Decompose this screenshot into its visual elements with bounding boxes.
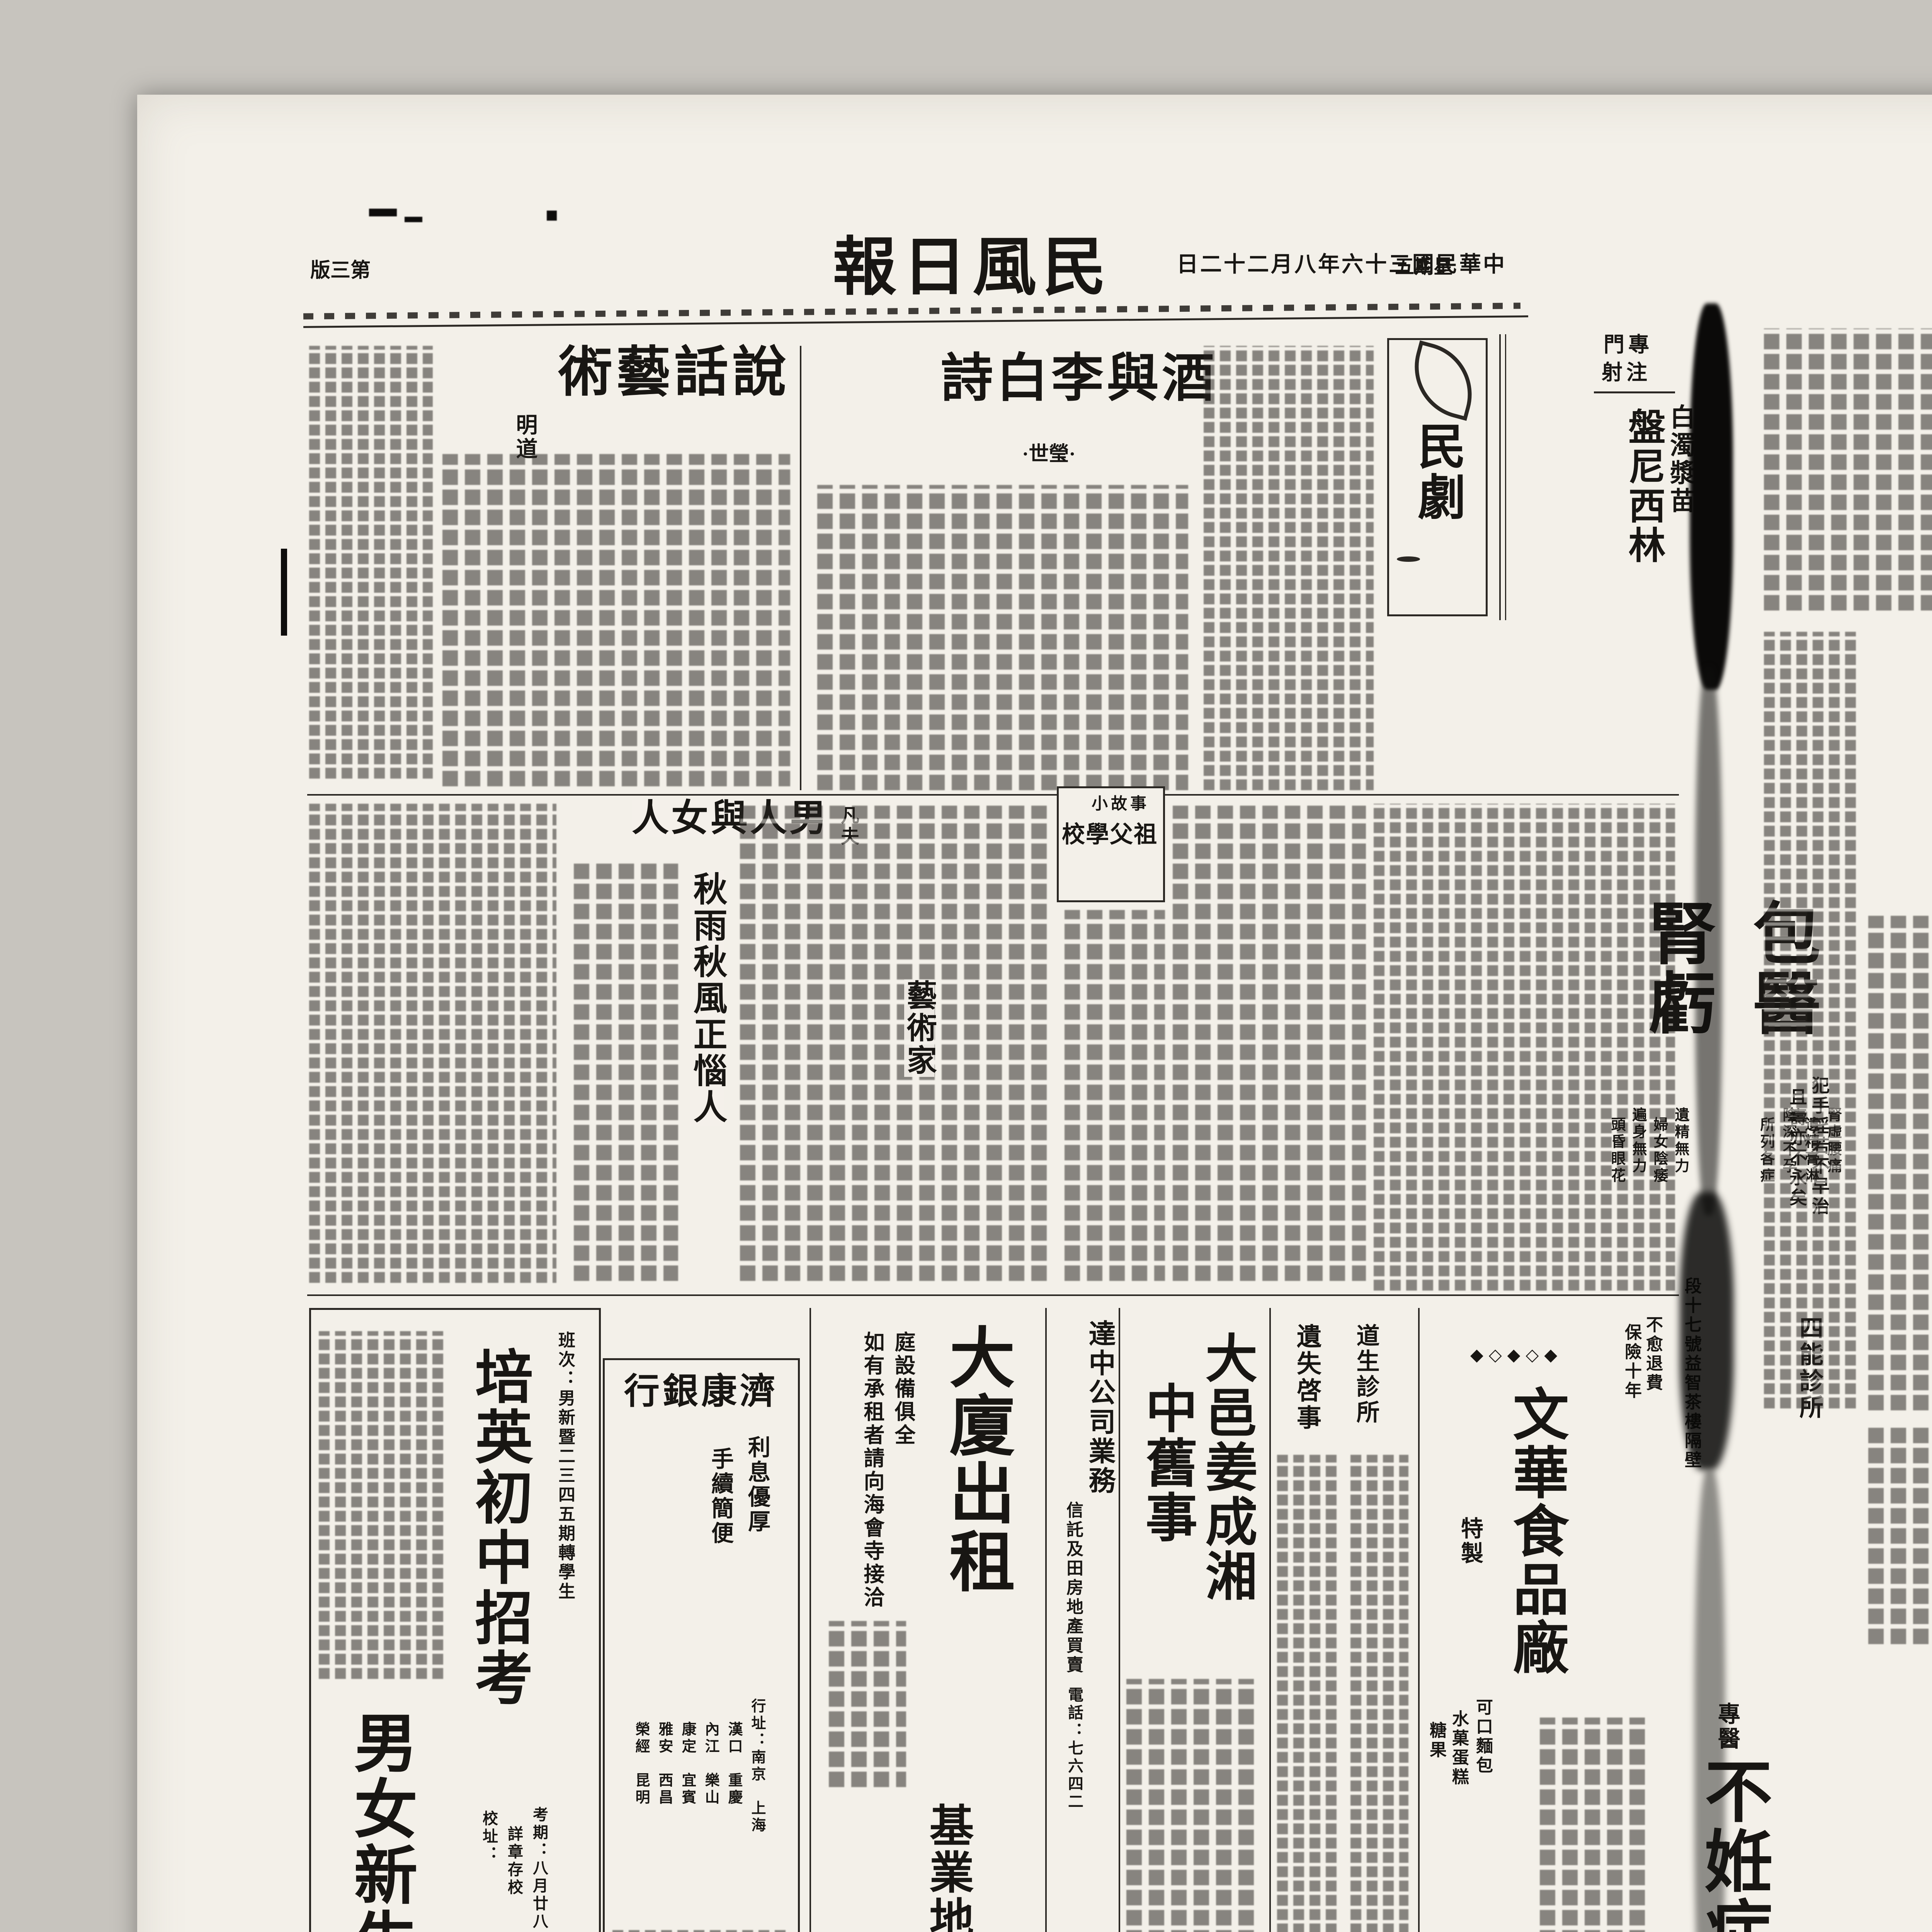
wine-libai-body-text [817,485,1188,790]
newspaper-scan: { "scan": { "paper_name": "民風日報", "paper… [0,0,1932,1932]
jikang-bank-ad [603,1358,800,1932]
left-date-line: 日二十二月八年六十三國民華中 [1177,254,1507,276]
peiying-class-line: 班次：男新暨二三四五期轉學生 [556,1331,573,1602]
dayi-col-2: 中舊事 [1140,1381,1192,1545]
kidney-symptom-7: 頭昏眼花 [1609,1117,1624,1185]
fold-ink-smear-top [1690,303,1733,690]
left-masthead-title: 報日風民 [833,236,1112,299]
dazhong-line: 信託及田房地產買賣 [1065,1501,1082,1675]
men-women-body-text [574,864,678,1281]
jikang-small-print [612,1930,786,1932]
speech-art-title: 術藝話說 [558,346,790,400]
lost-notice-text [1277,1455,1339,1932]
left-weekday-label: 五期星 [1395,257,1453,276]
jikang-branch-row-3: 內江 樂山 [703,1721,718,1806]
ad-divider-5 [1418,1308,1420,1932]
newspaper-spread: 版三第 報日風民 日二十二月八年六十三國民華中 五期星 術藝話說 明道 詩白李與… [137,95,1932,1932]
ad-divider-4 [1269,1308,1271,1932]
ad-divider-2 [1045,1308,1047,1932]
peiying-title: 培英初中招考 [469,1347,527,1708]
daosheng-clinic-text [1350,1455,1408,1932]
fold-ink-smear-bottom [1694,1470,1725,1932]
jikang-bank-name: 行銀康濟 [624,1374,779,1409]
peiying-students: 男女新生 [348,1710,412,1932]
kidney-symptom-2: 婦女陰痿 [1652,1117,1667,1185]
injection-ad-product-1: 白濁漿苗 [1667,404,1693,515]
injection-ad-underline [1594,391,1675,393]
artist-title: 藝術家 [904,980,934,1077]
dazhong-title: 達中公司業務 [1086,1320,1113,1496]
daxia-body-2: 如有承租者請向海會寺接洽 [862,1331,883,1609]
jikang-feature-1: 利息優厚 [746,1435,768,1534]
scan-left-edge-streak [281,549,287,636]
wine-libai-title: 詩白李與酒 [941,353,1217,405]
injection-ad-kicker: 門專 [1604,334,1653,355]
scan-mark-1 [369,209,397,216]
peiying-address-label: 校址： [481,1810,497,1864]
kidney-symptom-1: 遺精無力 [1673,1107,1688,1175]
wine-libai-author: ·世瑩· [1022,444,1076,464]
fold-adjacent-text [1764,632,1861,1408]
wenhua-title: 文華食品廠 [1507,1385,1563,1677]
scan-mark-3 [547,211,557,221]
story-body-text [1173,806,1366,1281]
ad-divider [810,1308,811,1932]
dayi-col-1: 大邑姜成湘 [1200,1331,1252,1604]
kidney-claim-1: 不愈退費 [1644,1316,1661,1393]
speech-art-body-text [442,454,790,786]
ads-section-rule [307,1294,1679,1296]
autumn-feature-body [1868,916,1932,1410]
jikang-feature-2: 手續簡便 [709,1447,731,1546]
kidney-claim-2: 保險十年 [1623,1323,1640,1401]
dayi-body-text [1126,1679,1258,1932]
column-divider [800,346,801,790]
wenhua-body-text [1540,1718,1652,1932]
little-story-kicker: 小故事 [1092,796,1150,812]
peiying-exam-date: 考期：八月廿八 [531,1806,547,1931]
little-story-title: 校學父祖 [1062,823,1158,846]
autumn-rain-title: 秋雨秋風正惱人 [690,871,724,1126]
fold-ink-smear-mid [1695,667,1722,1215]
scan-mark-2 [405,217,422,222]
daxia-body-1: 庭設備俱全 [893,1331,913,1447]
left-column-body-text [309,804,556,1283]
fold-column-rule [1499,334,1501,620]
wenhua-special: 特製 [1459,1517,1481,1566]
ad-divider-3 [1119,1308,1120,1932]
little-story-box: 小故事 校學父祖 [1057,786,1165,902]
peiying-detail-text [319,1331,446,1679]
injection-ad-word: 射注 [1602,362,1651,383]
left-edition-label: 版三第 [310,261,371,281]
feature-body-text [740,806,1049,1281]
injection-ad-product-2: 盤尼西林 [1625,408,1662,565]
jikang-branch-row-6: 榮經 昆明 [634,1721,648,1806]
fold-ink-blob [1680,1192,1734,1470]
peiying-note: 詳章存校 [506,1826,522,1897]
minju-logo-text: 民劇 [1412,421,1461,522]
lost-notice-title: 遺失啓事 [1294,1323,1319,1432]
wenhua-item-2: 水菓蛋糕 [1450,1710,1467,1787]
jikang-branch-row-4: 康定 宜賓 [680,1721,695,1806]
jikang-branch-row-5: 雅安 西昌 [657,1721,672,1806]
kidney-symptom-3: 遍身無力 [1631,1107,1645,1175]
wenhua-deco-dots: ◆◇◆◇◆ [1470,1347,1563,1364]
dazhong-phone: 電話：七六四二 [1066,1687,1082,1811]
wenhua-item-1: 可口麵包 [1474,1698,1491,1776]
lower-left-body-text [1868,1428,1932,1644]
daxia-agency: 基業地產公司 [925,1803,970,1932]
story-body-text-2 [1065,910,1165,1281]
jikang-branch-row-1: 行址：南京 上海 [750,1698,764,1834]
daxia-title: 大廈出租 [943,1323,1009,1595]
left-strip-body-text [1204,346,1374,790]
wenhua-item-3: 糖果 [1428,1721,1445,1760]
left-right-strip-text [1374,804,1675,1291]
left-margin-column-text [309,346,433,779]
daxia-body-text [829,1621,906,1787]
minju-logo-box: 民劇 [1387,338,1488,616]
tragedy-body-text [1764,328,1932,611]
fold-column-rule-2 [1505,334,1506,620]
leaf-icon [1403,340,1483,421]
section-rule [307,794,1679,796]
daosheng-clinic-title: 道生診所 [1354,1323,1378,1425]
jikang-branch-row-2: 漢口 重慶 [726,1721,741,1806]
logo-ornament [1397,556,1420,562]
